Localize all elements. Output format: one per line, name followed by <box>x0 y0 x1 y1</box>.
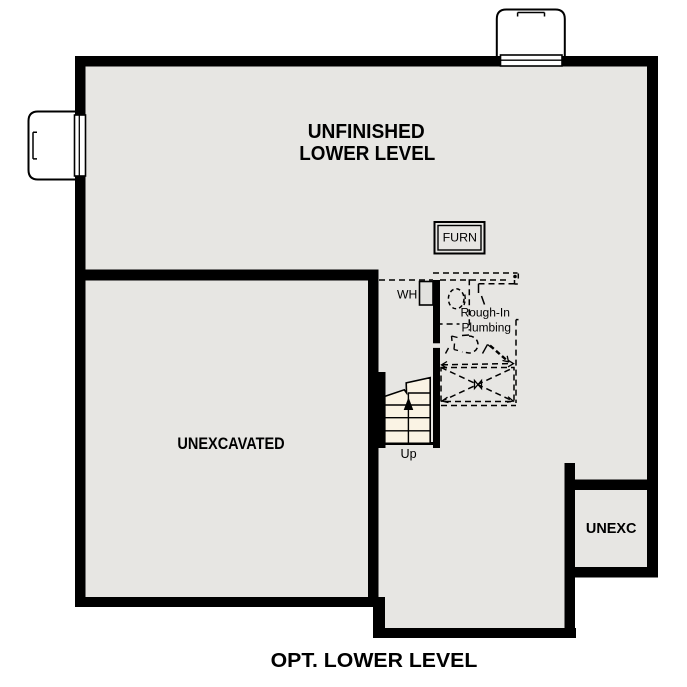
svg-text:Plumbing: Plumbing <box>461 320 511 334</box>
svg-text:UNFINISHED: UNFINISHED <box>308 121 425 143</box>
svg-text:UNEXCAVATED: UNEXCAVATED <box>177 435 285 453</box>
svg-text:OPT. LOWER LEVEL: OPT. LOWER LEVEL <box>271 649 478 672</box>
svg-text:FURN: FURN <box>443 230 477 244</box>
svg-text:UNEXC: UNEXC <box>586 521 637 537</box>
svg-text:LOWER LEVEL: LOWER LEVEL <box>299 143 435 165</box>
svg-text:Rough-In: Rough-In <box>460 305 510 319</box>
svg-text:WH: WH <box>397 288 417 302</box>
svg-text:Up: Up <box>401 447 417 461</box>
